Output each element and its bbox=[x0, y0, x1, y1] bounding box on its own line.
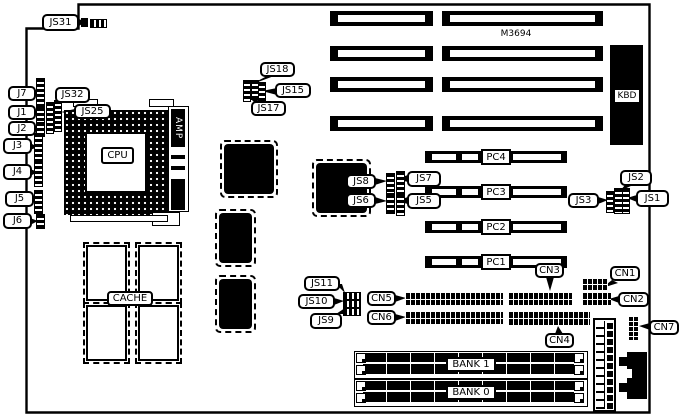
chipset-chip bbox=[219, 213, 252, 263]
callout-js10: JS10 bbox=[298, 294, 335, 309]
cache-chip bbox=[138, 305, 179, 361]
keyboard-din-notch bbox=[627, 369, 632, 378]
callout-js8: JS8 bbox=[346, 174, 376, 189]
js10-jumper bbox=[343, 300, 361, 308]
j1-header bbox=[36, 107, 45, 123]
callout-js9: JS9 bbox=[310, 313, 342, 329]
bank1-label: BANK 1 bbox=[446, 357, 496, 372]
cn5-connector bbox=[405, 293, 503, 305]
callout-js31: JS31 bbox=[42, 14, 79, 31]
socket-lever bbox=[70, 215, 168, 222]
callout-j1: J1 bbox=[8, 105, 36, 120]
callout-j6: J6 bbox=[3, 213, 32, 229]
callout-cn5: CN5 bbox=[367, 291, 396, 306]
callout-js6: JS6 bbox=[346, 193, 376, 208]
model-number: M3694 bbox=[488, 29, 544, 39]
isa-slot bbox=[442, 11, 603, 26]
keyboard-din-tab bbox=[619, 383, 628, 392]
js17-jumper bbox=[258, 82, 266, 102]
callout-j3: J3 bbox=[3, 138, 32, 154]
cn1-connector bbox=[582, 279, 608, 290]
callout-js17: JS17 bbox=[251, 101, 286, 116]
power-connector bbox=[593, 318, 616, 412]
simm-latch bbox=[356, 393, 366, 403]
j5-header bbox=[34, 190, 43, 214]
simm-latch bbox=[574, 365, 584, 375]
motherboard-diagram: M3694 KBD CPU AMP CACHE PC4 PC3 PC2 bbox=[0, 0, 681, 416]
callout-cn2: CN2 bbox=[618, 292, 649, 307]
pci-slot-pc4: PC4 bbox=[425, 151, 567, 163]
pc4-label: PC4 bbox=[481, 149, 511, 165]
js25-jumper bbox=[54, 100, 62, 132]
callout-js18: JS18 bbox=[260, 62, 295, 77]
simm-latch bbox=[574, 393, 584, 403]
cache-chip bbox=[86, 305, 127, 361]
callout-cn4: CN4 bbox=[545, 333, 574, 348]
js8-js7-jumper bbox=[386, 173, 395, 194]
isa-slot bbox=[330, 77, 433, 92]
callout-js3: JS3 bbox=[568, 193, 599, 208]
simm-latch bbox=[574, 381, 584, 391]
pc1-label: PC1 bbox=[481, 254, 511, 270]
callout-j5: J5 bbox=[5, 191, 34, 207]
cn7-connector bbox=[629, 316, 638, 340]
isa-slot bbox=[442, 77, 603, 92]
js1-jumper bbox=[622, 188, 630, 214]
callout-js2: JS2 bbox=[620, 170, 652, 186]
j6-header bbox=[36, 214, 45, 229]
pc2-label: PC2 bbox=[481, 219, 511, 235]
cpu-label: CPU bbox=[101, 147, 134, 164]
isa-slot bbox=[330, 46, 433, 61]
isa-slot bbox=[442, 46, 603, 61]
js31-jumper bbox=[90, 19, 107, 28]
js31-jumper-pad bbox=[81, 18, 88, 27]
simm-latch bbox=[356, 353, 366, 363]
callout-js7: JS7 bbox=[407, 171, 441, 187]
js32-jumper bbox=[46, 102, 54, 134]
js9-jumper bbox=[343, 308, 361, 316]
callout-cn6: CN6 bbox=[367, 310, 396, 325]
js8-js7-jumper bbox=[396, 171, 405, 194]
simm-latch bbox=[356, 381, 366, 391]
callout-js5: JS5 bbox=[407, 193, 441, 209]
callout-j2: J2 bbox=[8, 121, 36, 136]
amp-module: AMP bbox=[168, 106, 189, 212]
chipset-chip bbox=[224, 144, 274, 194]
callout-j4: J4 bbox=[3, 164, 32, 180]
cn6-connector bbox=[405, 312, 503, 324]
js6-js5-jumper bbox=[386, 194, 395, 214]
cn3-connector bbox=[508, 293, 572, 305]
callout-js11: JS11 bbox=[304, 276, 340, 291]
bank0-label: BANK 0 bbox=[446, 385, 496, 400]
js6-js5-jumper bbox=[396, 194, 405, 216]
cache-label: CACHE bbox=[107, 291, 153, 306]
isa-slot bbox=[330, 11, 433, 26]
isa-slot bbox=[330, 116, 433, 131]
callout-cn1: CN1 bbox=[610, 266, 640, 281]
js18-jumper bbox=[243, 80, 251, 102]
cn4-connector bbox=[508, 312, 590, 325]
simm-latch bbox=[356, 365, 366, 375]
pci-slot-pc2: PC2 bbox=[425, 221, 567, 233]
callout-js15: JS15 bbox=[275, 83, 311, 98]
amp-top-section: AMP bbox=[171, 109, 185, 147]
amp-label: AMP bbox=[173, 117, 183, 139]
callout-js1: JS1 bbox=[636, 190, 669, 207]
simm-latch bbox=[574, 353, 584, 363]
j4-header bbox=[34, 160, 43, 187]
pci-slot-pc3: PC3 bbox=[425, 186, 567, 198]
callout-js25: JS25 bbox=[74, 104, 111, 119]
cn2-connector bbox=[582, 293, 611, 305]
chipset-chip bbox=[219, 279, 252, 329]
kbd-label: KBD bbox=[614, 89, 640, 103]
keyboard-din-tab bbox=[619, 357, 628, 366]
js3-jumper bbox=[606, 191, 614, 213]
callout-js32: JS32 bbox=[55, 87, 90, 103]
isa-slot bbox=[442, 116, 603, 131]
callout-j7: J7 bbox=[8, 86, 36, 101]
j3-header bbox=[34, 133, 43, 160]
pc3-label: PC3 bbox=[481, 184, 511, 200]
amp-mid-section bbox=[171, 149, 185, 177]
callout-cn7: CN7 bbox=[649, 320, 679, 335]
js11-jumper bbox=[343, 292, 361, 300]
amp-bottom-section bbox=[171, 179, 185, 210]
callout-cn3: CN3 bbox=[535, 263, 564, 278]
